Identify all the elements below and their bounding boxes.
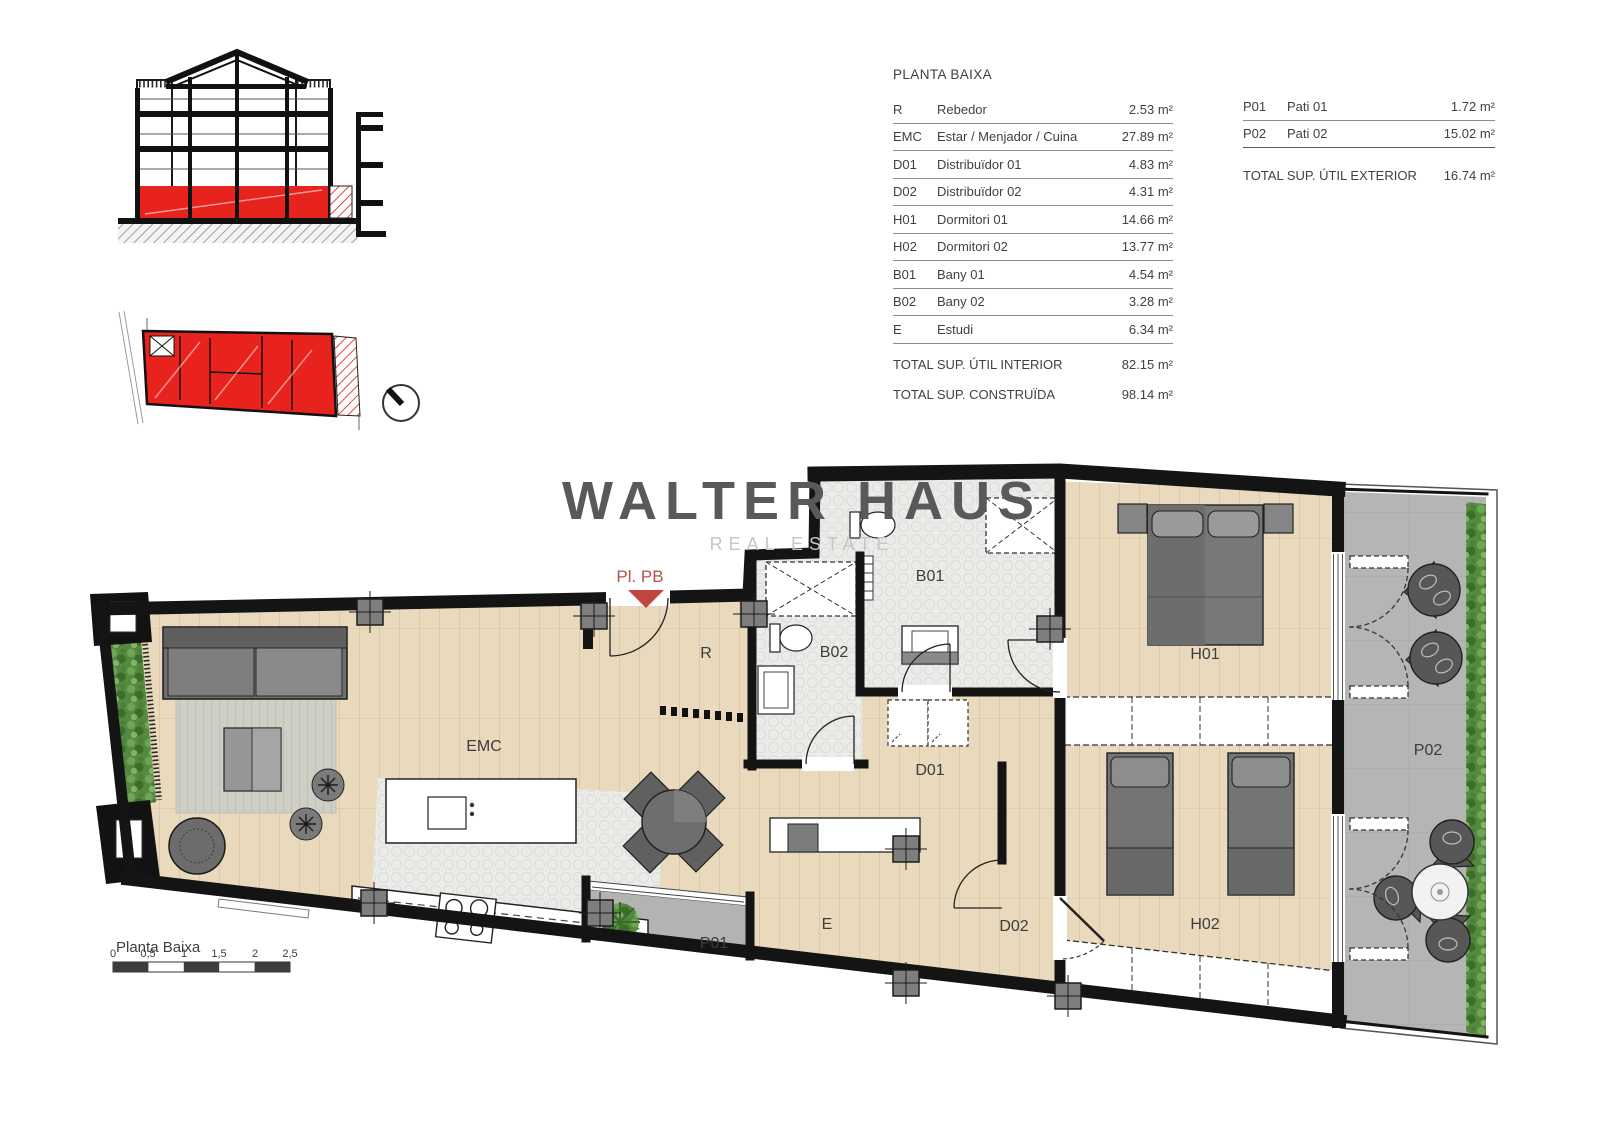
ground-hatch bbox=[118, 224, 358, 243]
scale-tick: 2 bbox=[252, 948, 258, 960]
north-compass-icon bbox=[383, 385, 419, 421]
laundry-closet bbox=[888, 700, 968, 746]
room-area: 6.34 m² bbox=[1129, 322, 1173, 337]
scale-tick: 0,5 bbox=[140, 948, 155, 960]
total-row: TOTAL SUP. ÚTIL INTERIOR 82.15 m² bbox=[893, 350, 1173, 380]
room-name: Dormitori 02 bbox=[937, 239, 1122, 254]
patio-chair bbox=[1426, 914, 1470, 962]
room-area: 14.66 m² bbox=[1122, 212, 1173, 227]
room-name: Dormitori 01 bbox=[937, 212, 1122, 227]
scale-tick: 1 bbox=[181, 948, 187, 960]
nightstand bbox=[1264, 504, 1293, 533]
shower bbox=[986, 498, 1058, 553]
patio-chair bbox=[1430, 820, 1474, 868]
total-value: 82.15 m² bbox=[1122, 357, 1173, 372]
table-row: P02 Pati 02 15.02 m² bbox=[1243, 121, 1495, 149]
room-code: D02 bbox=[893, 184, 937, 199]
table-row: P01 Pati 01 1.72 m² bbox=[1243, 93, 1495, 121]
room-code: B02 bbox=[893, 294, 937, 309]
room-code: E bbox=[893, 322, 937, 337]
room-area: 4.31 m² bbox=[1129, 184, 1173, 199]
room-code: EMC bbox=[893, 129, 937, 144]
room-name: Pati 01 bbox=[1287, 99, 1451, 114]
room-label-p01: P01 bbox=[700, 935, 729, 952]
room-area: 4.54 m² bbox=[1129, 267, 1173, 282]
exterior-totals: TOTAL SUP. ÚTIL EXTERIOR 16.74 m² bbox=[1243, 160, 1495, 190]
toilet bbox=[770, 624, 812, 652]
floorplan-sheet: Pl. PB R EMC B01 B02 D01 D02 E H01 H02 P… bbox=[0, 0, 1600, 1131]
room-name: Rebedor bbox=[937, 102, 1129, 117]
total-value: 98.14 m² bbox=[1122, 387, 1173, 402]
wardrobe-h01 bbox=[1064, 697, 1336, 745]
scale-tick: 1,5 bbox=[211, 948, 226, 960]
room-name: Bany 01 bbox=[937, 267, 1129, 282]
room-code: H02 bbox=[893, 239, 937, 254]
room-label-h01: H01 bbox=[1190, 646, 1219, 663]
single-bed bbox=[1107, 753, 1173, 895]
interior-areas-table: PLANTA BAIXA R Rebedor 2.53 m² EMC Estar… bbox=[893, 67, 1173, 410]
room-area: 2.53 m² bbox=[1129, 102, 1173, 117]
scale-tick: 0 bbox=[110, 948, 116, 960]
room-area: 3.28 m² bbox=[1129, 294, 1173, 309]
table-row: H01 Dormitori 01 14.66 m² bbox=[893, 206, 1173, 234]
total-row: TOTAL SUP. ÚTIL EXTERIOR 16.74 m² bbox=[1243, 160, 1495, 190]
table-title: PLANTA BAIXA bbox=[893, 67, 1173, 82]
total-label: TOTAL SUP. CONSTRUÏDA bbox=[893, 387, 1122, 402]
room-name: Estar / Menjador / Cuina bbox=[937, 129, 1122, 144]
room-label-p02: P02 bbox=[1414, 742, 1443, 759]
table-row: H02 Dormitori 02 13.77 m² bbox=[893, 234, 1173, 262]
room-label-h02: H02 bbox=[1190, 916, 1219, 933]
double-bed bbox=[1148, 505, 1263, 645]
ground-line bbox=[118, 218, 358, 224]
street-line bbox=[119, 311, 143, 424]
sofa bbox=[163, 627, 347, 699]
patio-table bbox=[1412, 864, 1468, 920]
armchair bbox=[169, 818, 225, 874]
room-name: Estudi bbox=[937, 322, 1129, 337]
room-label-r: R bbox=[700, 645, 712, 662]
section-highlight-patio bbox=[330, 186, 352, 218]
room-area: 13.77 m² bbox=[1122, 239, 1173, 254]
hedge-p02 bbox=[1466, 502, 1486, 1036]
toilet bbox=[850, 512, 895, 538]
total-value: 16.74 m² bbox=[1444, 168, 1495, 183]
room-code: B01 bbox=[893, 267, 937, 282]
single-bed bbox=[1228, 753, 1294, 895]
table-row: B01 Bany 01 4.54 m² bbox=[893, 261, 1173, 289]
kitchen-island bbox=[386, 779, 576, 843]
coffee-table bbox=[224, 728, 281, 791]
neighbour-section bbox=[356, 112, 386, 237]
room-label-d02: D02 bbox=[999, 918, 1028, 935]
pouf bbox=[290, 808, 322, 840]
room-area: 15.02 m² bbox=[1444, 126, 1495, 141]
table-row: D01 Distribuïdor 01 4.83 m² bbox=[893, 151, 1173, 179]
washbasin bbox=[758, 666, 794, 714]
room-code: P01 bbox=[1243, 99, 1287, 114]
table-row: R Rebedor 2.53 m² bbox=[893, 96, 1173, 124]
entrance-label: Pl. PB bbox=[616, 567, 663, 586]
building-section bbox=[118, 52, 386, 243]
plan-caption: Planta Baixa bbox=[116, 939, 201, 956]
table-row: EMC Estar / Menjador / Cuina 27.89 m² bbox=[893, 124, 1173, 152]
room-area: 1.72 m² bbox=[1451, 99, 1495, 114]
room-label-emc: EMC bbox=[466, 738, 502, 755]
nightstand bbox=[1118, 504, 1147, 533]
floor-plan: Pl. PB R EMC B01 B02 D01 D02 E H01 H02 P… bbox=[90, 471, 1497, 1044]
keyplan-patio-hatch bbox=[334, 336, 360, 416]
room-area: 4.83 m² bbox=[1129, 157, 1173, 172]
room-code: H01 bbox=[893, 212, 937, 227]
total-label: TOTAL SUP. ÚTIL EXTERIOR bbox=[1243, 168, 1444, 183]
site-key-plan bbox=[119, 311, 419, 430]
room-name: Distribuïdor 02 bbox=[937, 184, 1129, 199]
room-label-e: E bbox=[822, 916, 833, 933]
room-name: Distribuïdor 01 bbox=[937, 157, 1129, 172]
room-label-d01: D01 bbox=[915, 762, 944, 779]
room-label-b01: B01 bbox=[916, 568, 945, 585]
total-row: TOTAL SUP. CONSTRUÏDA 98.14 m² bbox=[893, 380, 1173, 410]
room-name: Bany 02 bbox=[937, 294, 1129, 309]
scale-tick: 2,5 bbox=[282, 948, 297, 960]
room-code: R bbox=[893, 102, 937, 117]
interior-totals: TOTAL SUP. ÚTIL INTERIOR 82.15 m² TOTAL … bbox=[893, 350, 1173, 410]
room-code: P02 bbox=[1243, 126, 1287, 141]
footer: Planta Baixa 0 0,5 1 1,5 2 2,5 bbox=[110, 939, 298, 972]
exterior-areas-table: P01 Pati 01 1.72 m² P02 Pati 02 15.02 m²… bbox=[1243, 93, 1495, 190]
table-row: D02 Distribuïdor 02 4.31 m² bbox=[893, 179, 1173, 207]
room-area: 27.89 m² bbox=[1122, 129, 1173, 144]
total-label: TOTAL SUP. ÚTIL INTERIOR bbox=[893, 357, 1122, 372]
table-row: E Estudi 6.34 m² bbox=[893, 316, 1173, 344]
table-row: B02 Bany 02 3.28 m² bbox=[893, 289, 1173, 317]
room-name: Pati 02 bbox=[1287, 126, 1444, 141]
sink bbox=[428, 797, 466, 829]
room-label-b02: B02 bbox=[820, 644, 849, 661]
pouf bbox=[312, 769, 344, 801]
room-code: D01 bbox=[893, 157, 937, 172]
